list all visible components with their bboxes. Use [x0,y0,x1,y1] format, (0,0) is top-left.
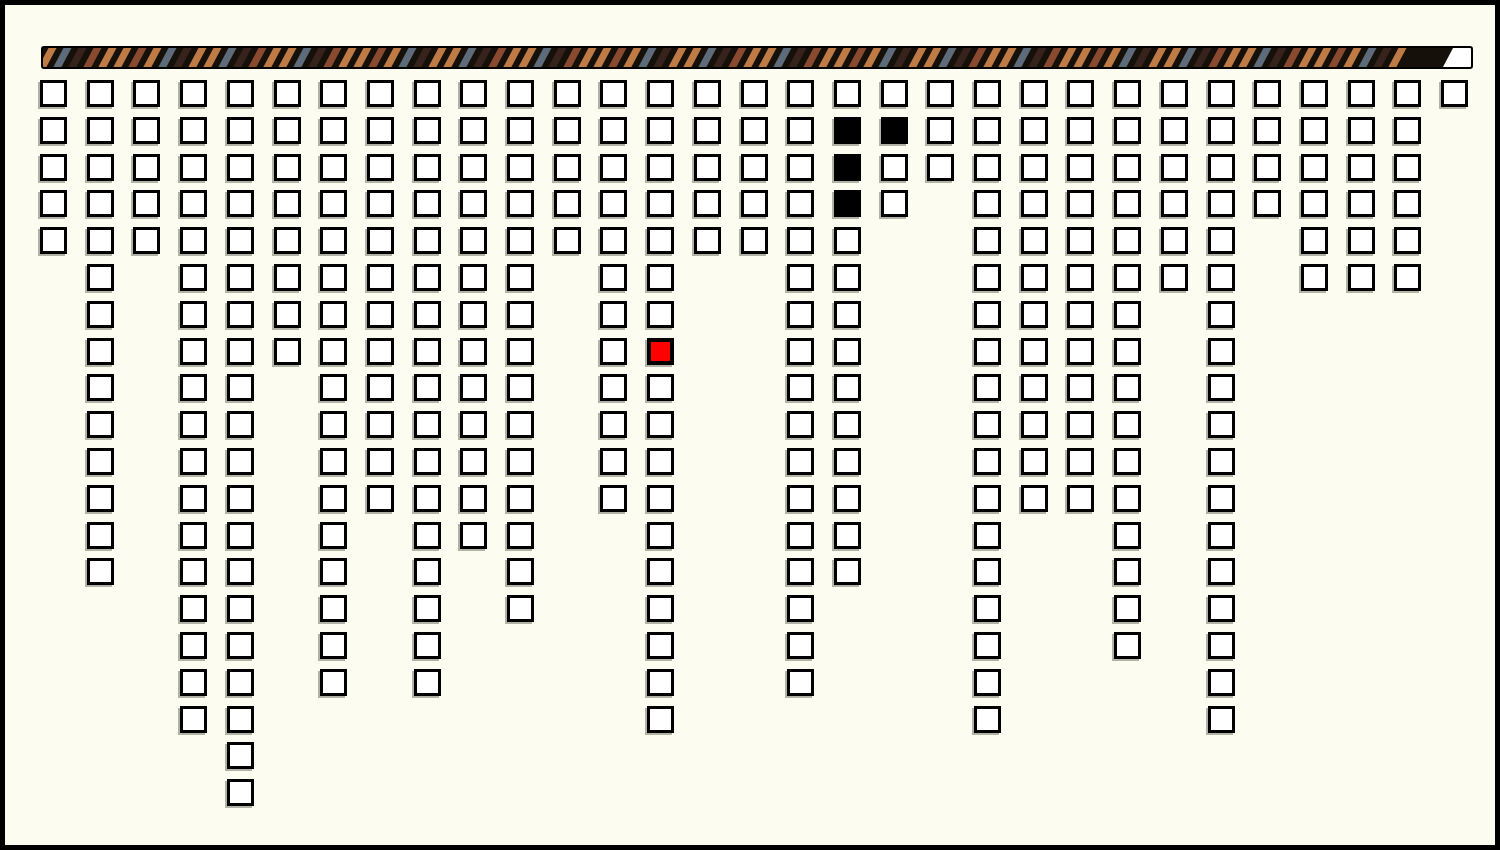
grid-cell[interactable] [40,190,67,217]
grid-cell[interactable] [787,80,814,107]
grid-cell[interactable] [1114,522,1141,549]
grid-cell[interactable] [974,669,1001,696]
grid-cell[interactable] [87,338,114,365]
grid-cell[interactable] [787,411,814,438]
grid-cell[interactable] [741,154,768,181]
grid-cell[interactable] [1114,558,1141,585]
grid-cell[interactable] [507,301,534,328]
grid-cell[interactable] [320,80,347,107]
grid-cell[interactable] [507,411,534,438]
grid-cell[interactable] [460,301,487,328]
grid-cell[interactable] [274,80,301,107]
grid-cell[interactable] [787,154,814,181]
grid-cell[interactable] [787,669,814,696]
grid-cell[interactable] [180,374,207,401]
grid-cell[interactable] [834,411,861,438]
grid-cell[interactable] [1114,117,1141,144]
grid-cell[interactable] [974,632,1001,659]
grid-cell[interactable] [1161,154,1188,181]
grid-cell[interactable] [227,264,254,291]
grid-cell[interactable] [647,485,674,512]
grid-cell[interactable] [1208,485,1235,512]
grid-cell[interactable] [1114,80,1141,107]
grid-cell[interactable] [600,338,627,365]
grid-cell[interactable] [367,264,394,291]
grid-cell[interactable] [787,117,814,144]
grid-cell[interactable] [227,80,254,107]
grid-cell[interactable] [647,448,674,475]
grid-cell[interactable] [460,80,487,107]
grid-cell[interactable] [414,338,441,365]
grid-cell[interactable] [554,154,581,181]
grid-cell[interactable] [180,632,207,659]
grid-cell[interactable] [320,448,347,475]
grid-cell[interactable] [507,558,534,585]
grid-cell[interactable] [1208,411,1235,438]
grid-cell[interactable] [460,338,487,365]
grid-cell[interactable] [834,338,861,365]
grid-cell[interactable] [367,485,394,512]
grid-cell[interactable] [974,522,1001,549]
grid-cell[interactable] [834,374,861,401]
grid-cell[interactable] [1348,190,1375,217]
grid-cell[interactable] [1254,190,1281,217]
grid-cell[interactable] [787,227,814,254]
grid-cell[interactable] [320,190,347,217]
grid-cell[interactable] [180,301,207,328]
grid-cell[interactable] [600,117,627,144]
grid-cell[interactable] [414,154,441,181]
grid-cell[interactable] [133,80,160,107]
grid-cell[interactable] [787,338,814,365]
grid-cell[interactable] [647,411,674,438]
grid-cell[interactable] [881,190,908,217]
grid-cell[interactable] [1208,632,1235,659]
grid-cell[interactable] [87,80,114,107]
grid-cell[interactable] [87,522,114,549]
grid-cell[interactable] [554,190,581,217]
grid-cell[interactable] [1021,485,1048,512]
grid-cell[interactable] [274,154,301,181]
grid-cell[interactable] [647,301,674,328]
grid-cell[interactable] [274,338,301,365]
grid-cell[interactable] [974,706,1001,733]
grid-cell[interactable] [1021,338,1048,365]
grid-cell[interactable] [1208,301,1235,328]
red-cell[interactable] [647,338,674,365]
grid-cell[interactable] [647,374,674,401]
grid-cell[interactable] [1021,190,1048,217]
grid-cell[interactable] [1114,338,1141,365]
grid-cell[interactable] [647,264,674,291]
grid-cell[interactable] [974,117,1001,144]
grid-cell[interactable] [87,190,114,217]
grid-cell[interactable] [927,117,954,144]
grid-cell[interactable] [834,485,861,512]
grid-cell[interactable] [881,80,908,107]
grid-cell[interactable] [320,264,347,291]
grid-cell[interactable] [694,80,721,107]
grid-cell[interactable] [1161,264,1188,291]
grid-cell[interactable] [133,190,160,217]
grid-cell[interactable] [274,227,301,254]
grid-cell[interactable] [600,227,627,254]
grid-cell[interactable] [1067,190,1094,217]
grid-cell[interactable] [320,632,347,659]
grid-cell[interactable] [227,779,254,806]
grid-cell[interactable] [647,154,674,181]
grid-cell[interactable] [647,522,674,549]
grid-cell[interactable] [180,669,207,696]
grid-cell[interactable] [834,301,861,328]
grid-cell[interactable] [600,301,627,328]
grid-cell[interactable] [460,374,487,401]
grid-cell[interactable] [40,117,67,144]
grid-cell[interactable] [1114,154,1141,181]
grid-cell[interactable] [1114,301,1141,328]
grid-cell[interactable] [507,522,534,549]
grid-cell[interactable] [974,80,1001,107]
grid-cell[interactable] [974,154,1001,181]
grid-cell[interactable] [227,154,254,181]
grid-cell[interactable] [274,264,301,291]
grid-cell[interactable] [1067,80,1094,107]
grid-cell[interactable] [87,485,114,512]
grid-cell[interactable] [320,338,347,365]
grid-cell[interactable] [87,558,114,585]
grid-cell[interactable] [1208,706,1235,733]
grid-cell[interactable] [927,80,954,107]
grid-cell[interactable] [1114,264,1141,291]
grid-cell[interactable] [974,485,1001,512]
grid-cell[interactable] [1254,154,1281,181]
grid-cell[interactable] [974,595,1001,622]
grid-cell[interactable] [1301,190,1328,217]
grid-cell[interactable] [87,117,114,144]
grid-cell[interactable] [507,448,534,475]
grid-cell[interactable] [974,374,1001,401]
grid-cell[interactable] [227,411,254,438]
grid-cell[interactable] [1161,227,1188,254]
grid-cell[interactable] [834,558,861,585]
grid-cell[interactable] [647,227,674,254]
grid-cell[interactable] [414,264,441,291]
grid-cell[interactable] [367,190,394,217]
grid-cell[interactable] [694,154,721,181]
grid-cell[interactable] [1394,264,1421,291]
grid-cell[interactable] [1208,190,1235,217]
grid-cell[interactable] [1208,374,1235,401]
grid-cell[interactable] [1067,264,1094,291]
grid-cell[interactable] [787,522,814,549]
grid-cell[interactable] [1114,227,1141,254]
grid-cell[interactable] [1394,80,1421,107]
grid-cell[interactable] [507,374,534,401]
grid-cell[interactable] [1348,264,1375,291]
grid-cell[interactable] [1067,301,1094,328]
grid-cell[interactable] [787,485,814,512]
grid-cell[interactable] [787,448,814,475]
grid-cell[interactable] [1114,374,1141,401]
grid-cell[interactable] [414,558,441,585]
grid-cell[interactable] [227,706,254,733]
grid-cell[interactable] [1208,80,1235,107]
grid-cell[interactable] [1348,117,1375,144]
grid-cell[interactable] [1021,411,1048,438]
grid-cell[interactable] [554,80,581,107]
grid-cell[interactable] [1021,374,1048,401]
grid-cell[interactable] [1021,264,1048,291]
grid-cell[interactable] [834,80,861,107]
grid-cell[interactable] [1301,80,1328,107]
grid-cell[interactable] [647,558,674,585]
grid-cell[interactable] [881,154,908,181]
grid-cell[interactable] [320,227,347,254]
grid-cell[interactable] [460,117,487,144]
grid-cell[interactable] [1161,117,1188,144]
grid-cell[interactable] [87,301,114,328]
grid-cell[interactable] [227,669,254,696]
grid-cell[interactable] [180,117,207,144]
grid-cell[interactable] [320,411,347,438]
grid-cell[interactable] [1067,485,1094,512]
grid-cell[interactable] [600,190,627,217]
grid-cell[interactable] [1208,448,1235,475]
grid-cell[interactable] [367,301,394,328]
grid-cell[interactable] [133,154,160,181]
grid-cell[interactable] [180,522,207,549]
grid-cell[interactable] [834,522,861,549]
grid-cell[interactable] [180,227,207,254]
grid-cell[interactable] [974,338,1001,365]
grid-cell[interactable] [647,190,674,217]
black-cell[interactable] [834,117,861,144]
grid-cell[interactable] [1394,227,1421,254]
grid-cell[interactable] [1394,190,1421,217]
grid-cell[interactable] [647,117,674,144]
grid-cell[interactable] [741,117,768,144]
grid-cell[interactable] [834,448,861,475]
grid-cell[interactable] [133,117,160,144]
grid-cell[interactable] [180,706,207,733]
grid-cell[interactable] [1348,227,1375,254]
grid-cell[interactable] [1208,669,1235,696]
grid-cell[interactable] [507,190,534,217]
grid-cell[interactable] [320,522,347,549]
grid-cell[interactable] [1021,117,1048,144]
grid-cell[interactable] [647,669,674,696]
grid-cell[interactable] [414,632,441,659]
grid-cell[interactable] [1067,411,1094,438]
grid-cell[interactable] [320,117,347,144]
grid-cell[interactable] [367,154,394,181]
grid-cell[interactable] [227,558,254,585]
grid-cell[interactable] [460,227,487,254]
grid-cell[interactable] [1208,154,1235,181]
grid-cell[interactable] [367,374,394,401]
grid-cell[interactable] [600,264,627,291]
grid-cell[interactable] [974,301,1001,328]
grid-cell[interactable] [414,485,441,512]
grid-cell[interactable] [974,411,1001,438]
grid-cell[interactable] [927,154,954,181]
grid-cell[interactable] [227,742,254,769]
black-cell[interactable] [834,190,861,217]
grid-cell[interactable] [1301,227,1328,254]
grid-cell[interactable] [227,227,254,254]
grid-cell[interactable] [507,80,534,107]
grid-cell[interactable] [1208,595,1235,622]
grid-cell[interactable] [1114,632,1141,659]
grid-cell[interactable] [787,595,814,622]
grid-cell[interactable] [1348,80,1375,107]
grid-cell[interactable] [367,411,394,438]
grid-cell[interactable] [320,374,347,401]
grid-cell[interactable] [320,558,347,585]
grid-cell[interactable] [87,374,114,401]
grid-cell[interactable] [414,411,441,438]
grid-cell[interactable] [1067,227,1094,254]
grid-cell[interactable] [414,80,441,107]
grid-cell[interactable] [227,301,254,328]
grid-cell[interactable] [1021,80,1048,107]
grid-cell[interactable] [320,301,347,328]
grid-cell[interactable] [227,485,254,512]
grid-cell[interactable] [460,264,487,291]
grid-cell[interactable] [414,595,441,622]
grid-cell[interactable] [507,264,534,291]
grid-cell[interactable] [1114,595,1141,622]
grid-cell[interactable] [227,448,254,475]
grid-cell[interactable] [414,117,441,144]
grid-cell[interactable] [40,154,67,181]
grid-cell[interactable] [1114,190,1141,217]
grid-cell[interactable] [554,117,581,144]
grid-cell[interactable] [227,632,254,659]
grid-cell[interactable] [87,448,114,475]
grid-cell[interactable] [507,227,534,254]
grid-cell[interactable] [694,117,721,144]
grid-cell[interactable] [460,154,487,181]
grid-cell[interactable] [414,227,441,254]
grid-cell[interactable] [1021,227,1048,254]
grid-cell[interactable] [414,190,441,217]
grid-cell[interactable] [647,706,674,733]
grid-cell[interactable] [414,448,441,475]
grid-cell[interactable] [320,485,347,512]
grid-cell[interactable] [460,190,487,217]
grid-cell[interactable] [507,154,534,181]
grid-cell[interactable] [1114,448,1141,475]
grid-cell[interactable] [320,154,347,181]
grid-cell[interactable] [834,264,861,291]
grid-cell[interactable] [1021,448,1048,475]
grid-cell[interactable] [741,190,768,217]
grid-cell[interactable] [741,227,768,254]
grid-cell[interactable] [180,154,207,181]
grid-cell[interactable] [600,80,627,107]
grid-cell[interactable] [600,485,627,512]
grid-cell[interactable] [507,485,534,512]
grid-cell[interactable] [1208,522,1235,549]
grid-cell[interactable] [974,558,1001,585]
grid-cell[interactable] [274,301,301,328]
grid-cell[interactable] [600,448,627,475]
grid-cell[interactable] [367,227,394,254]
grid-cell[interactable] [180,485,207,512]
grid-cell[interactable] [133,227,160,254]
grid-cell[interactable] [1254,117,1281,144]
grid-cell[interactable] [40,80,67,107]
grid-cell[interactable] [274,190,301,217]
grid-cell[interactable] [1301,154,1328,181]
grid-cell[interactable] [227,117,254,144]
grid-cell[interactable] [367,117,394,144]
grid-cell[interactable] [1161,190,1188,217]
grid-cell[interactable] [1021,154,1048,181]
grid-cell[interactable] [1067,117,1094,144]
grid-cell[interactable] [1394,117,1421,144]
grid-cell[interactable] [507,117,534,144]
grid-cell[interactable] [1208,558,1235,585]
grid-cell[interactable] [1394,154,1421,181]
grid-cell[interactable] [414,669,441,696]
black-cell[interactable] [834,154,861,181]
grid-cell[interactable] [787,301,814,328]
grid-cell[interactable] [787,264,814,291]
grid-cell[interactable] [507,595,534,622]
grid-cell[interactable] [1067,338,1094,365]
grid-cell[interactable] [1348,154,1375,181]
grid-cell[interactable] [741,80,768,107]
grid-cell[interactable] [694,190,721,217]
grid-cell[interactable] [180,595,207,622]
grid-cell[interactable] [974,448,1001,475]
grid-cell[interactable] [460,522,487,549]
grid-cell[interactable] [600,411,627,438]
grid-cell[interactable] [787,632,814,659]
grid-cell[interactable] [87,411,114,438]
grid-cell[interactable] [647,595,674,622]
grid-cell[interactable] [600,374,627,401]
grid-cell[interactable] [1021,301,1048,328]
grid-cell[interactable] [974,264,1001,291]
grid-cell[interactable] [1254,80,1281,107]
grid-cell[interactable] [1161,80,1188,107]
grid-cell[interactable] [180,558,207,585]
grid-cell[interactable] [647,632,674,659]
grid-cell[interactable] [87,154,114,181]
grid-cell[interactable] [507,338,534,365]
grid-cell[interactable] [1301,117,1328,144]
grid-cell[interactable] [227,595,254,622]
grid-cell[interactable] [1441,80,1468,107]
grid-cell[interactable] [1114,485,1141,512]
grid-cell[interactable] [180,190,207,217]
grid-cell[interactable] [834,227,861,254]
grid-cell[interactable] [600,154,627,181]
grid-cell[interactable] [694,227,721,254]
grid-cell[interactable] [1208,338,1235,365]
grid-cell[interactable] [180,448,207,475]
grid-cell[interactable] [1208,227,1235,254]
grid-cell[interactable] [227,374,254,401]
grid-cell[interactable] [367,448,394,475]
grid-cell[interactable] [414,522,441,549]
grid-cell[interactable] [180,80,207,107]
grid-cell[interactable] [787,558,814,585]
grid-cell[interactable] [414,301,441,328]
